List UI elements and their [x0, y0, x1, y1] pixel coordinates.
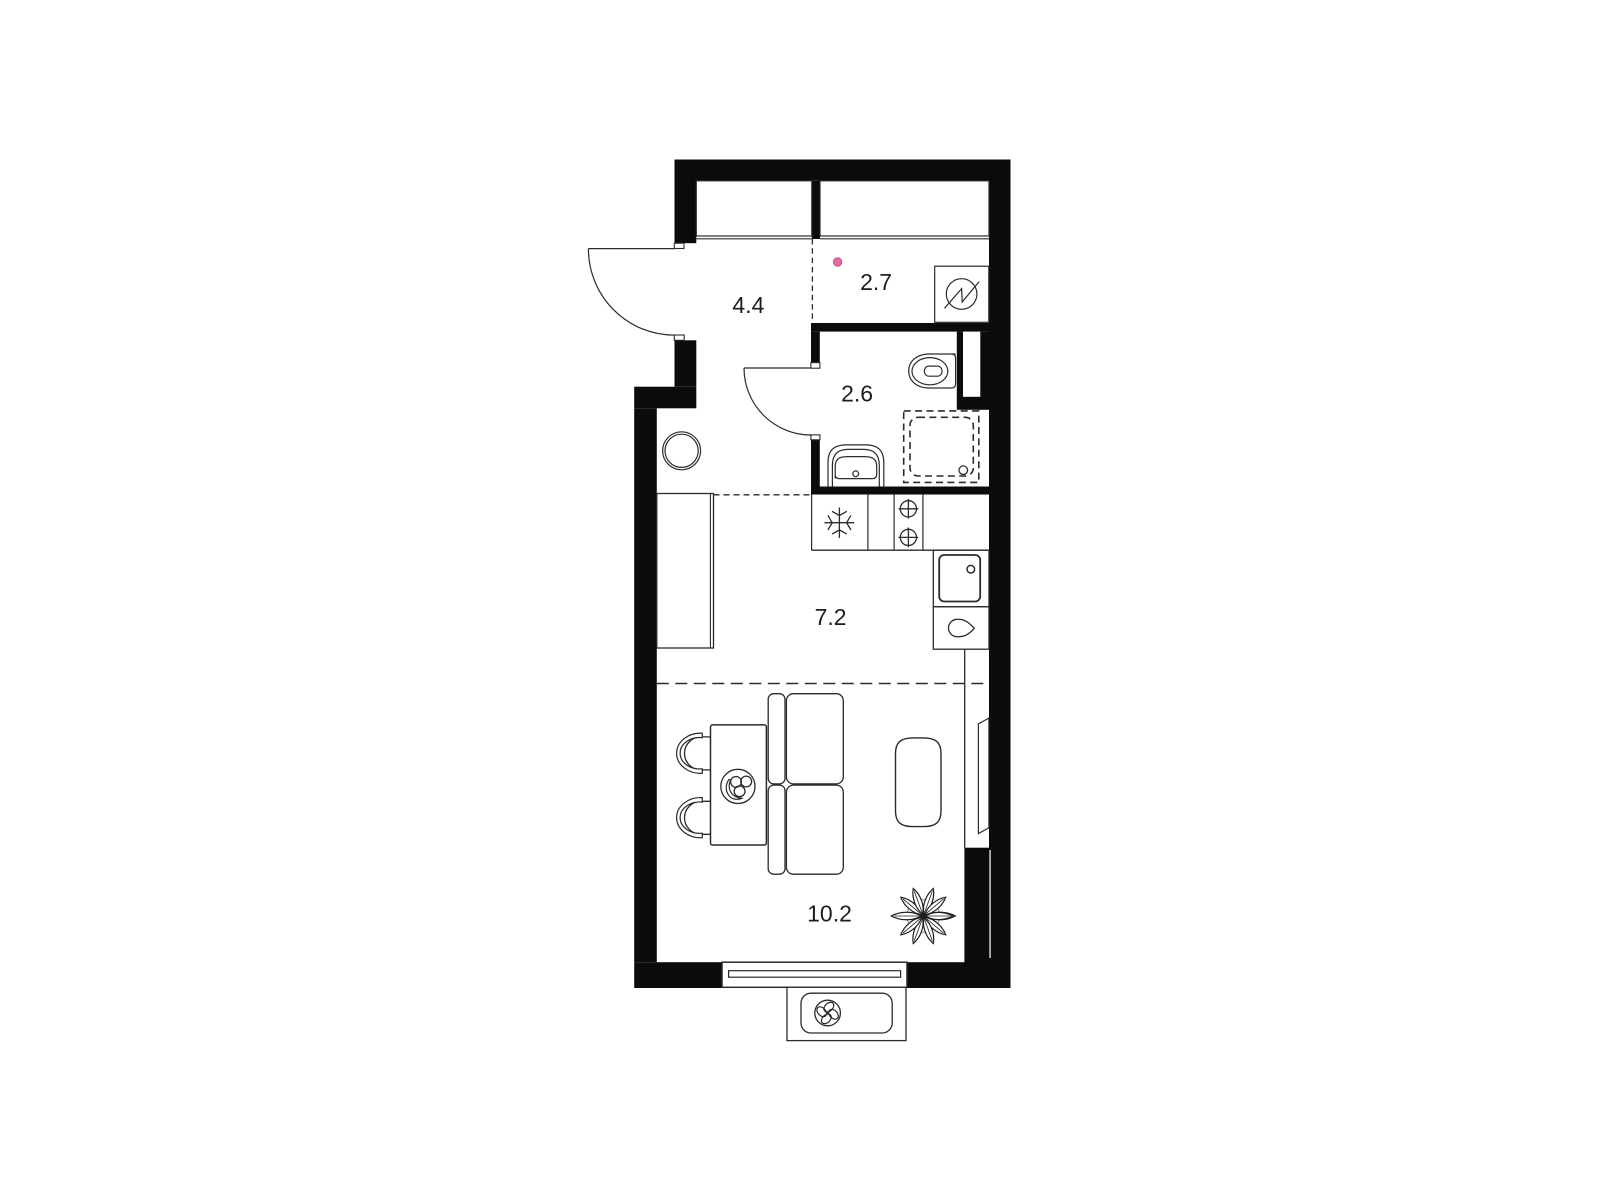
svg-text:7.2: 7.2 — [815, 604, 847, 630]
svg-text:4.4: 4.4 — [732, 292, 764, 318]
svg-text:2.7: 2.7 — [860, 269, 892, 295]
svg-text:10.2: 10.2 — [807, 901, 852, 927]
svg-text:2.6: 2.6 — [841, 381, 873, 407]
